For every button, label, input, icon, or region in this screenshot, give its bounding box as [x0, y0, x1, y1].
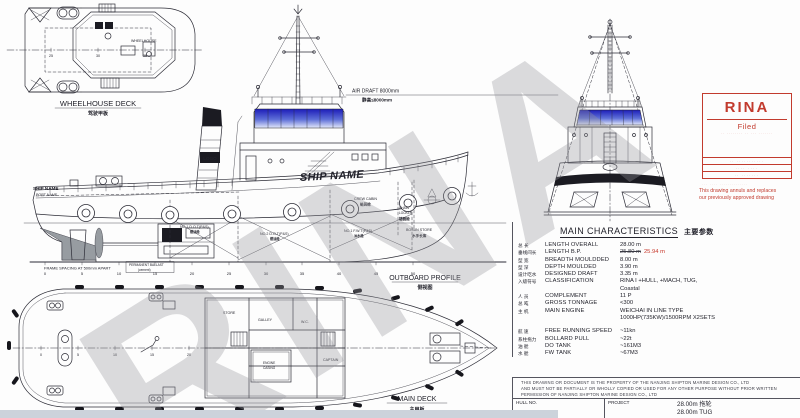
deck-outline	[7, 7, 203, 93]
char-row: 油 舱DO TANK~161M3	[518, 343, 799, 350]
propeller	[95, 228, 103, 258]
char-row: 系柱拖力BOLLARD PULL~22t	[518, 336, 799, 343]
char-value-revised: 25.94 m	[644, 249, 665, 255]
char-value: 25.80 m25.94 m	[620, 249, 799, 256]
chain-locker-label-cn: 锚链舱	[399, 216, 410, 221]
frame-number: 0	[44, 271, 47, 276]
characteristics-title-cn: 主要参数	[684, 229, 714, 236]
char-row: 主 机MAIN ENGINEWEICHAI IN LINE TYPE1000HP…	[518, 308, 799, 323]
char-cn: 型 深	[518, 264, 545, 271]
project-value-cn: 28.00m 拖轮	[677, 401, 712, 409]
char-cn: 水 舱	[518, 350, 545, 357]
air-draft-label: AIR DRAFT 8000mm	[352, 89, 399, 95]
char-label: LENGTH OVERALL	[545, 242, 620, 249]
tank-label-cn: 燃油舱	[270, 236, 280, 241]
svg-text:MAIN DECK: MAIN DECK	[398, 396, 437, 403]
char-label: COMPLEMENT	[545, 293, 620, 300]
char-label: FREE RUNNING SPEED	[545, 328, 620, 335]
frame-number: 0	[40, 353, 42, 357]
tank-label-cn: 燃油舱	[190, 229, 200, 234]
char-value: 3.90 m	[620, 264, 799, 271]
char-value-old: 25.80 m	[620, 249, 641, 255]
char-cn: 人 员	[518, 293, 545, 300]
room-label-wc: W.C.	[301, 320, 309, 324]
wheelhouse-room-label: WHEELHOUSE	[131, 39, 157, 43]
frame-number: 5	[77, 353, 79, 357]
char-label: GROSS TONNAGE	[545, 300, 620, 307]
bosun-store-label: BOSUN STORE	[406, 228, 433, 232]
frame-number: 35	[300, 271, 305, 276]
deck-frame-scale: 0 5 10 15 20	[40, 346, 191, 357]
char-cn: 主 机	[518, 308, 545, 323]
char-cn: 油 舱	[518, 343, 545, 350]
frame-number: 25	[49, 54, 53, 58]
stamp-row: ···· ····	[703, 164, 791, 171]
drawing-sheet: LOGO AIR DRAFT 8000mm 静高≤8000mm SHIP NAM…	[0, 0, 800, 418]
bow-elevation-view	[540, 15, 710, 225]
frame-number: 30	[264, 271, 269, 276]
char-value-line2: Coastal	[620, 286, 799, 293]
char-cn: 入级符号	[518, 278, 545, 293]
svg-text:驾驶甲板: 驾驶甲板	[88, 110, 109, 117]
char-row: 设计吃水DESIGNED DRAFT3.35 m	[518, 271, 799, 278]
char-cn: 系柱拖力	[518, 336, 545, 343]
mast	[254, 5, 344, 104]
svg-text:PERMANENT BALLAST: PERMANENT BALLAST	[129, 263, 164, 267]
char-cn: 型 宽	[518, 257, 545, 264]
characteristics-title: MAIN CHARACTERISTICS主要参数	[560, 226, 799, 237]
char-label: MAIN ENGINE	[545, 308, 620, 323]
char-row: 航 速FREE RUNNING SPEED~11kn	[518, 328, 799, 335]
char-row: 型 深DEPTH MOULDED3.90 m	[518, 264, 799, 271]
char-value: 8.00 m	[620, 257, 799, 264]
towing-hook	[141, 340, 156, 352]
char-cn: 总 吨	[518, 300, 545, 307]
char-label: BREADTH MOULDDED	[545, 257, 620, 264]
char-value-line2: 1000HP(735KW)/1500RPM X2SETS	[620, 315, 799, 322]
rina-logo: RINA	[703, 94, 791, 116]
frame-number: 35	[143, 54, 147, 58]
main-characteristics-table: MAIN CHARACTERISTICS主要参数 总 长LENGTH OVERA…	[512, 222, 799, 357]
char-value: WEICHAI IN LINE TYPE1000HP(735KW)/1500RP…	[620, 308, 799, 323]
stamp-rows: ·· ··········· ···· ···· ·· ·······	[703, 157, 791, 178]
frame-number: 20	[187, 353, 191, 357]
stamp-note: This drawing annuls and replaces our pre…	[699, 188, 799, 202]
towing-winch	[70, 176, 122, 186]
char-label: FW TANK	[545, 350, 620, 357]
main-deck-plan: STORE GALLEY W.C. CAPTAIN ENGINE CASING …	[3, 283, 508, 418]
frame-number: 15	[150, 353, 154, 357]
frame-number: 20	[190, 271, 195, 276]
project-cell: PROJECT 28.00m 拖轮 28.00m TUG	[605, 399, 800, 418]
char-label: DO TANK	[545, 343, 620, 350]
property-notice: THIS DRAWING OR DOCUMENT IS THE PROPERTY…	[513, 378, 800, 398]
room-label-engine-casing-1: ENGINE	[263, 361, 275, 365]
char-label: BOLLARD PULL	[545, 336, 620, 343]
rina-stamp: RINA Filed ·· ········ ·· ··· ······· ··…	[702, 93, 792, 179]
frame-number: 30	[96, 54, 100, 58]
scan-edge-strip	[0, 410, 558, 418]
tank-label: NO.1 F.W.T(P&S)	[344, 229, 372, 233]
char-cn: 设计吃水	[518, 271, 545, 278]
stamp-note-line-1: This drawing annuls and replaces	[699, 188, 799, 195]
wheelhouse-deck-title: WHEELHOUSE DECK 驾驶甲板	[55, 99, 141, 117]
stern-port-name: PORT NAME	[36, 193, 58, 197]
project-value-en: 28.00m TUG	[677, 409, 712, 417]
char-label: LENGTH B.P.	[545, 249, 620, 256]
air-draft-dimension: AIR DRAFT 8000mm 静高≤8000mm	[346, 89, 558, 104]
char-value: 11 P	[620, 293, 799, 300]
stern-ship-name: SHIP NAME	[33, 186, 58, 191]
stamp-note-line-2: our previously approved drawing	[699, 195, 799, 202]
bow-structure	[544, 19, 676, 221]
room-label-store: STORE	[223, 311, 236, 315]
svg-text:WHEELHOUSE DECK: WHEELHOUSE DECK	[60, 99, 136, 108]
characteristics-title-en: MAIN CHARACTERISTICS	[560, 226, 678, 238]
char-row: 总 吨GROSS TONNAGE<300	[518, 300, 799, 307]
main-engine	[158, 224, 214, 258]
project-value: 28.00m 拖轮 28.00m TUG	[677, 401, 712, 417]
stamp-row: ·· ·······	[703, 171, 791, 178]
char-label: CLASSIFICATION	[545, 278, 620, 293]
frame-spacing-note: FRAME SPACING AT 500mm APART	[44, 266, 111, 271]
tank-label: NO.2 D.O.T(P&S)	[260, 232, 289, 236]
frame-number: 15	[153, 271, 158, 276]
char-cn: 垂线间长	[518, 249, 545, 256]
chain-locker-label-2: LOCKER	[399, 211, 413, 215]
crew-cabin-label-cn: 船员舱	[360, 202, 371, 207]
air-draft-label-cn: 静高≤8000mm	[362, 97, 392, 104]
char-row: 人 员COMPLEMENT11 P	[518, 293, 799, 300]
stamp-row: ·· ···········	[703, 157, 791, 164]
project-label: PROJECT	[608, 400, 629, 405]
room-label-engine-casing-2: CASING	[263, 366, 276, 370]
char-value: ~22t	[620, 336, 799, 343]
svg-text:(cement): (cement)	[138, 268, 151, 272]
char-value: RINA I +HULL, +MACH, TUG,Coastal	[620, 278, 799, 293]
svg-text:OUTBOARD PROFILE: OUTBOARD PROFILE	[389, 275, 461, 282]
char-value: 3.35 m	[620, 271, 799, 278]
char-label: DEPTH MOULDED	[545, 264, 620, 271]
char-value: ~161M3	[620, 343, 799, 350]
wheelhouse-frame-scale: 25 30 35	[49, 48, 147, 58]
char-row: 总 长LENGTH OVERALL28.00 m	[518, 242, 799, 249]
tank-label-cn: 淡水舱	[354, 233, 364, 238]
char-value: 28.00 m	[620, 242, 799, 249]
char-row: 入级符号CLASSIFICATIONRINA I +HULL, +MACH, T…	[518, 278, 799, 293]
funnel-logo-label: LOGO	[203, 156, 217, 161]
char-row: 型 宽BREADTH MOULDDED8.00 m	[518, 257, 799, 264]
room-label-captain: CAPTAIN	[323, 358, 339, 362]
permanent-ballast-label: PERMANENT BALLAST (cement)	[126, 262, 174, 273]
char-cn: 总 长	[518, 242, 545, 249]
char-row: 垂线间长LENGTH B.P.25.80 m25.94 m	[518, 249, 799, 256]
stamp-fine-print: ·· ········ ·· ··· ·······	[703, 131, 791, 135]
frame-number: 40	[337, 271, 342, 276]
char-value: ~11kn	[620, 328, 799, 335]
tank-boundaries	[170, 182, 412, 262]
underwater-gear	[40, 224, 214, 260]
char-value: ~67M3	[620, 350, 799, 357]
frame-number: 10	[113, 353, 117, 357]
chain-locker-label-1: CHAIN	[399, 206, 410, 210]
char-row: 水 舱FW TANK~67M3	[518, 350, 799, 357]
frame-number: 45	[374, 271, 379, 276]
stamp-ref-line: ··· ···· ··············	[702, 182, 798, 186]
wheelhouse-deck-plan: WHEELHOUSE 25 30 35 WHEELHOUSE DECK 驾驶甲板	[3, 2, 208, 120]
stamp-divider	[707, 119, 787, 120]
char-value: <300	[620, 300, 799, 307]
stamp-status: Filed	[703, 122, 791, 131]
hull-ship-name: SHIP NAME	[300, 169, 365, 184]
crew-cabin-label: CREW CABIN	[354, 197, 377, 201]
bow-wheelhouse-windows	[577, 110, 643, 125]
tank-label: NO.1 D.O.T(P&S)	[180, 225, 209, 229]
frame-number: 5	[81, 271, 84, 276]
room-label-galley: GALLEY	[258, 318, 273, 322]
char-label: DESIGNED DRAFT	[545, 271, 620, 278]
wheelhouse-outline	[73, 4, 175, 88]
char-cn: 航 速	[518, 328, 545, 335]
frame-number: 25	[227, 271, 232, 276]
frame-number: 10	[117, 271, 122, 276]
bosun-store-label-cn: 水手长库	[411, 233, 427, 238]
